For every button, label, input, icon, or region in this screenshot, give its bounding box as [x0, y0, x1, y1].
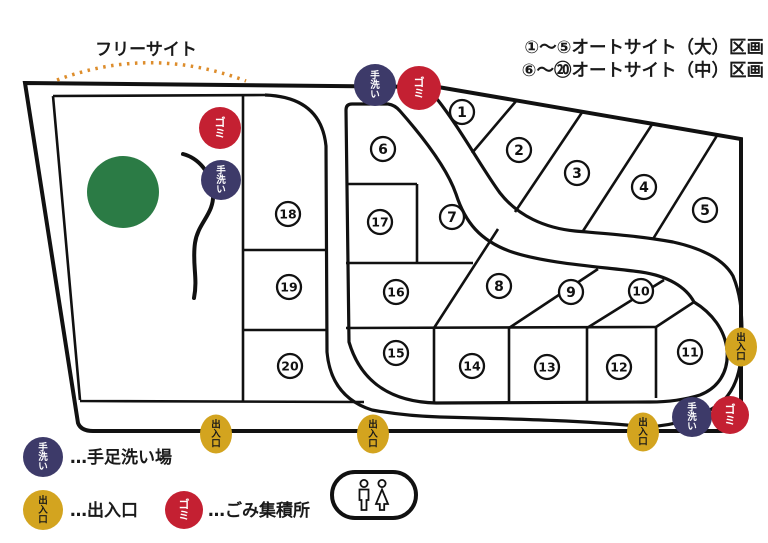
site-number-marker: 12 [607, 355, 631, 379]
tree-circle [87, 156, 159, 228]
road-outer-edge [265, 95, 742, 427]
site-number-marker: 15 [384, 341, 408, 365]
legend-top: ①～⑤オートサイト（大）区画 ⑥～⑳オートサイト（中）区画 [522, 37, 764, 81]
campsite-map: フリーサイト ①～⑤オートサイト（大）区画 ⑥～⑳オートサイト（中）区画 手洗い… [0, 0, 768, 543]
trash-badge-label: ゴミ [179, 497, 190, 522]
svg-text:5: 5 [700, 203, 710, 219]
trash-badge-label: ゴミ [215, 115, 226, 140]
map-lines [25, 83, 742, 431]
site-number-marker: 10 [629, 279, 653, 303]
site-number-marker: 14 [460, 354, 484, 378]
svg-text:18: 18 [279, 207, 296, 222]
site-number-marker: 11 [678, 340, 702, 364]
trash-badge: ゴミ [397, 66, 441, 110]
site-number-marker: 9 [559, 280, 583, 304]
site-number-marker: 13 [535, 355, 559, 379]
handwash-badge: 手洗い [201, 160, 241, 200]
exit-badge-label: 出入口 [37, 495, 48, 526]
exit-badge-label: 出入口 [735, 332, 746, 363]
trash-badge: ゴミ [711, 396, 749, 434]
svg-text:15: 15 [387, 346, 404, 361]
handwash-badge-label: 手洗い [370, 70, 380, 101]
svg-text:7: 7 [447, 210, 457, 226]
trash-badge: ゴミ [199, 107, 241, 149]
exit-badge: 出入口 [627, 413, 659, 452]
svg-text:1: 1 [457, 105, 467, 121]
legend-trash-text: …ごみ集積所 [208, 500, 310, 521]
site-number-marker: 19 [277, 275, 301, 299]
svg-text:14: 14 [463, 359, 481, 374]
site-number-marker: 8 [487, 274, 511, 298]
svg-text:13: 13 [538, 360, 555, 375]
handwash-badge: 手洗い [354, 64, 396, 106]
exit-badge: 出入口 [725, 328, 757, 367]
free-site-dotted-arc [57, 63, 246, 81]
trash-badge-label: ゴミ [414, 75, 425, 100]
exit-badge-label: 出入口 [210, 419, 221, 450]
svg-text:17: 17 [371, 215, 388, 230]
divider-8-9 [509, 269, 598, 328]
site-number-marker: 3 [565, 161, 589, 185]
svg-text:10: 10 [632, 284, 650, 299]
legend-handwash-text: …手足洗い場 [70, 447, 172, 468]
site-number-marker: 6 [371, 137, 395, 161]
svg-text:12: 12 [610, 360, 627, 375]
svg-text:16: 16 [387, 285, 405, 300]
site-number-marker: 4 [632, 175, 656, 199]
campsite-map-page: フリーサイト ①～⑤オートサイト（大）区画 ⑥～⑳オートサイト（中）区画 手洗い… [0, 0, 768, 543]
handwash-badge-label: 手洗い [216, 165, 226, 196]
restroom-man-woman-icon [332, 472, 416, 518]
legend-trash-badge: ゴミ [165, 491, 203, 529]
exit-badge-label: 出入口 [637, 417, 648, 448]
svg-text:6: 6 [378, 142, 388, 158]
site-number-marker: 18 [276, 202, 300, 226]
site-number-marker: 17 [368, 210, 392, 234]
map-outer-boundary [25, 83, 741, 431]
restroom-pill-outline [332, 472, 416, 518]
svg-text:20: 20 [281, 359, 299, 374]
site-number-marker: 7 [440, 205, 464, 229]
legend-exit-text: …出入口 [70, 500, 138, 521]
site-number-marker: 2 [507, 138, 531, 162]
svg-text:4: 4 [639, 180, 649, 196]
svg-text:11: 11 [681, 345, 698, 360]
divider-10-11 [656, 302, 694, 327]
legend-handwash-badge: 手洗い [23, 437, 63, 477]
svg-text:9: 9 [566, 285, 576, 301]
divider-4-5 [653, 134, 718, 239]
svg-text:2: 2 [514, 143, 524, 159]
handwash-badge: 手洗い [672, 397, 712, 437]
svg-text:19: 19 [280, 280, 297, 295]
legend-exit-badge: 出入口 [23, 490, 63, 530]
svg-text:3: 3 [572, 166, 582, 182]
legend-top-line1: ①～⑤オートサイト（大）区画 [524, 37, 764, 58]
legend-top-line2: ⑥～⑳オートサイト（中）区画 [522, 60, 764, 81]
legend-bottom: 手洗い …手足洗い場 出入口 …出入口 ゴミ …ごみ集積所 [23, 437, 310, 530]
free-site-label: フリーサイト [95, 40, 197, 60]
site-number-marker: 16 [384, 280, 408, 304]
handwash-badge-label: 手洗い [38, 442, 48, 473]
site-number-marker: 5 [693, 198, 717, 222]
exit-badge: 出入口 [357, 415, 389, 454]
trash-badge-label: ゴミ [725, 402, 736, 427]
row-12-15-top-edge [346, 327, 656, 328]
site-number-marker: 1 [450, 100, 474, 124]
exit-badge-label: 出入口 [367, 419, 378, 450]
handwash-badge-label: 手洗い [687, 402, 697, 433]
svg-text:8: 8 [494, 279, 504, 295]
site-number-marker: 20 [278, 354, 302, 378]
exit-badge: 出入口 [200, 415, 232, 454]
